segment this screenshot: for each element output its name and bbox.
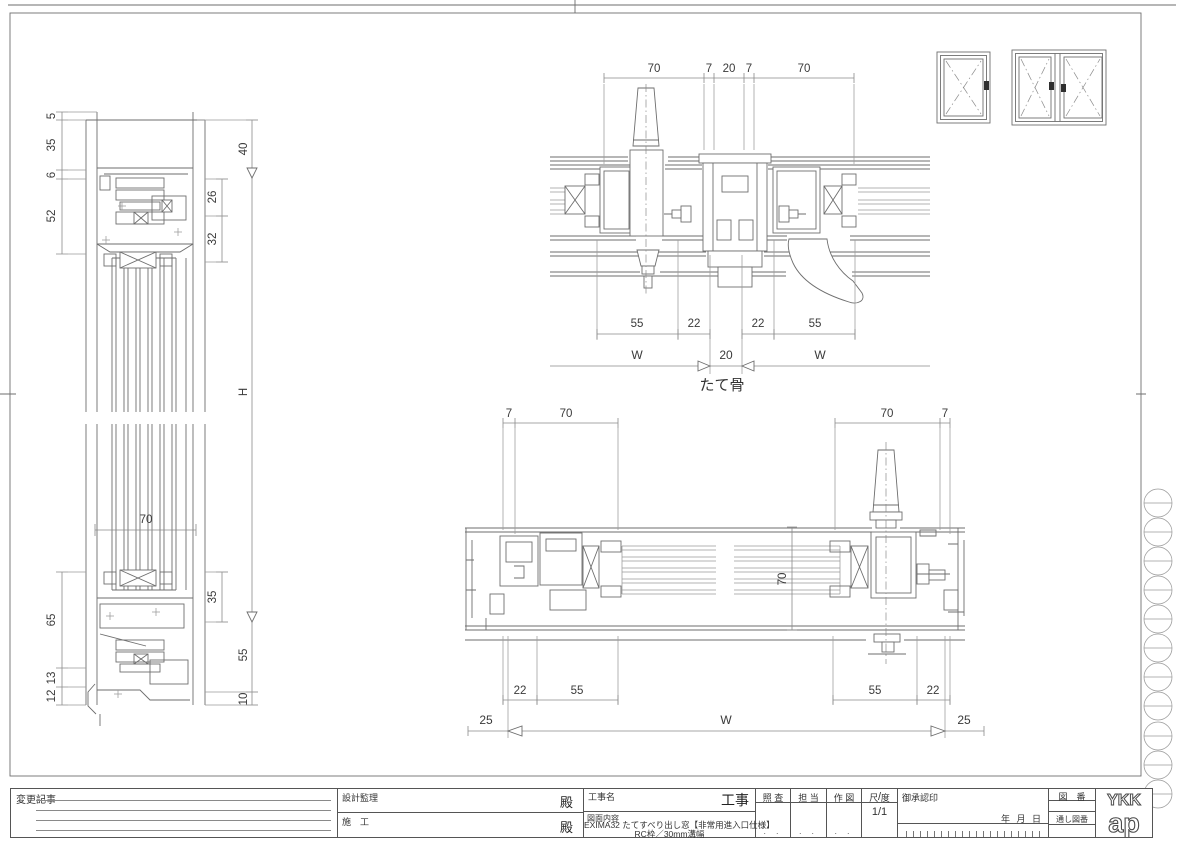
- dim-label: 7: [506, 408, 512, 420]
- dim-label: 22: [927, 685, 940, 697]
- handle-icon: [984, 81, 989, 90]
- design-supervision-label: 設計監理: [342, 791, 378, 804]
- construction-row: 施 工 殿: [338, 814, 583, 837]
- logo-cell: YKK ap: [1096, 789, 1152, 837]
- dim-label: 26: [207, 191, 219, 204]
- section-horizontal: 7 70 70 7 70 22 55 55 22 25 W 25: [465, 408, 984, 738]
- ykk-ap-logo: YKK ap: [1096, 789, 1152, 837]
- dim-label: 20: [723, 63, 736, 75]
- charge-cell: 担 当 . .: [791, 789, 827, 837]
- drawing-number-value: [1049, 801, 1095, 812]
- dim-label: 55: [631, 318, 644, 330]
- change-record-cell: 変更記事: [11, 789, 338, 837]
- placeholder-dots: . .: [827, 827, 861, 836]
- serial-number-header: 通し図番: [1049, 812, 1095, 825]
- dim-label: 10: [238, 693, 250, 706]
- supervision-cell: 設計監理 殿 施 工 殿: [338, 789, 584, 837]
- scale-slash: /: [862, 791, 897, 836]
- drawing-sheet: 5 35 6 52 65 13 12 26 32 35 40 H 55 10 7…: [0, 0, 1181, 843]
- dim-label: 7: [942, 408, 948, 420]
- drawing-title-line2: RC枠／30mm溝幅: [584, 828, 755, 840]
- project-name-row: 工事名 工事: [584, 789, 755, 812]
- drawing-number-cell: 図 番 通し図番: [1049, 789, 1096, 837]
- title-block: 変更記事 設計監理 殿 施 工 殿 工事名 工事 図面内容 EXIMA32 たて…: [10, 788, 1153, 838]
- project-name-label: 工事名: [588, 790, 615, 803]
- honorific-text: 殿: [560, 817, 573, 836]
- approval-label: 御承認印: [902, 791, 938, 804]
- dim-label: 70: [560, 408, 573, 420]
- dim-label: 6: [46, 172, 58, 178]
- dim-label: 12: [46, 690, 58, 703]
- handle-icon: [1061, 84, 1066, 92]
- project-suffix-text: 工事: [721, 790, 749, 810]
- dim-label: 70: [881, 408, 894, 420]
- dim-label: 40: [238, 143, 250, 156]
- dim-label: W: [814, 348, 826, 362]
- dim-label: 55: [809, 318, 822, 330]
- placeholder-dots: . .: [756, 827, 790, 836]
- logo-bottom-text: ap: [1108, 808, 1140, 837]
- handle-icon: [1049, 82, 1054, 90]
- placeholder-dots: . .: [791, 827, 826, 836]
- dim-label: 55: [571, 685, 584, 697]
- header-divider: [827, 802, 861, 803]
- dim-label: 22: [514, 685, 527, 697]
- change-record-line: [36, 800, 331, 801]
- section-mullion: 70 7 20 7 70 55 22 22 55 W 20 W たて骨: [550, 63, 930, 394]
- change-record-line: [36, 830, 331, 831]
- dim-label: 35: [46, 139, 58, 152]
- dim-label: 5: [46, 113, 58, 119]
- dim-label: W: [720, 713, 732, 727]
- dim-label: 25: [479, 713, 493, 727]
- dim-label: 70: [140, 514, 153, 526]
- section-title: たて骨: [699, 377, 744, 394]
- approval-cell: 御承認印 年 月 日: [898, 789, 1049, 837]
- drawing-number-header: 図 番: [1049, 789, 1095, 801]
- change-record-label: 変更記事: [16, 791, 56, 806]
- serial-number-label: 通し図番: [1049, 814, 1095, 825]
- header-divider: [756, 802, 790, 803]
- dim-label: 55: [238, 649, 250, 662]
- dim-label: W: [631, 348, 643, 362]
- revision-circle-column: [1144, 489, 1172, 808]
- dim-label: 22: [688, 318, 701, 330]
- elevation-double-casement: [1012, 50, 1106, 125]
- dim-label: 22: [752, 318, 765, 330]
- dim-label: 13: [46, 672, 58, 685]
- dim-label: 25: [957, 713, 971, 727]
- design-supervision-row: 設計監理 殿: [338, 789, 583, 813]
- dim-label: 55: [869, 685, 882, 697]
- header-divider: [791, 802, 826, 803]
- tick-marks: [906, 831, 1041, 837]
- honorific-text: 殿: [560, 792, 573, 811]
- change-record-line: [36, 810, 331, 811]
- scale-cell: 尺 度 1/1 /: [862, 789, 898, 837]
- dim-label: 65: [46, 614, 58, 627]
- dim-label: 35: [207, 591, 219, 604]
- date-label: 年 月 日: [1001, 812, 1043, 825]
- section-vertical: 5 35 6 52 65 13 12 26 32 35 40 H 55 10 7…: [46, 112, 258, 726]
- drawing-content-row: 図面内容 EXIMA32 たてすべり出し窓【非常用進入口仕様】 RC枠／30mm…: [584, 813, 755, 837]
- dim-label: 7: [746, 63, 752, 75]
- dim-label: 70: [798, 63, 811, 75]
- dim-label: 32: [207, 233, 219, 246]
- dim-label: H: [238, 388, 250, 396]
- construction-label: 施 工: [342, 815, 369, 828]
- project-cell: 工事名 工事 図面内容 EXIMA32 たてすべり出し窓【非常用進入口仕様】 R…: [584, 789, 756, 837]
- dim-label: 70: [648, 63, 661, 75]
- logo-top-text: YKK: [1107, 792, 1141, 809]
- dim-label: 7: [706, 63, 712, 75]
- elevation-single-casement: [937, 52, 990, 123]
- change-record-line: [36, 820, 331, 821]
- dim-label: 52: [46, 210, 58, 223]
- cad-drawing: 5 35 6 52 65 13 12 26 32 35 40 H 55 10 7…: [0, 0, 1181, 843]
- check-cell: 照 査 . .: [756, 789, 791, 837]
- draft-cell: 作 図 . .: [827, 789, 862, 837]
- dim-label: 20: [719, 348, 733, 362]
- dim-label: 70: [777, 573, 789, 586]
